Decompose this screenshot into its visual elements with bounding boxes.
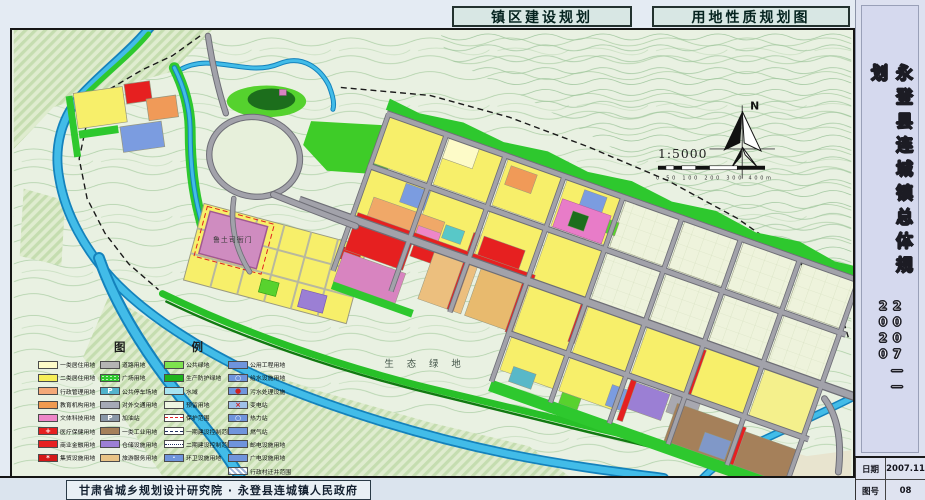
- planning-sheet: 镇区建设规划 用地性质规划图: [0, 0, 925, 500]
- map-frame: N 1:5000 0 50 100 200 300 400m 鲁土司衙门 生 态…: [10, 28, 855, 478]
- title-sidebar: 永登县连城镇总体规划 2007——2020 日期 2007.11 图号 08: [855, 0, 925, 500]
- date-label: 日期: [856, 458, 886, 480]
- landuse-map: N 1:5000 0 50 100 200 300 400m 鲁土司衙门 生 态…: [12, 30, 853, 476]
- figure-number-value: 08: [886, 480, 925, 500]
- landmark-label: 鲁土司衙门: [213, 235, 253, 244]
- credit-box: 甘肃省城乡规划设计研究院 · 永登县连城镇人民政府: [66, 480, 371, 500]
- footer-bar: 甘肃省城乡规划设计研究院 · 永登县连城镇人民政府: [0, 476, 855, 500]
- title-block-table: 日期 2007.11 图号 08: [855, 456, 925, 500]
- date-value: 2007.11: [886, 458, 925, 480]
- sheet-title-right: 用地性质规划图: [652, 6, 850, 27]
- scale-text: 1:5000: [658, 147, 707, 161]
- plan-years-vertical: 2007——2020: [876, 299, 904, 452]
- north-label: N: [750, 99, 759, 112]
- plan-title-vertical: 永登县连城镇总体规划: [865, 64, 915, 293]
- figure-number-label: 图号: [856, 480, 886, 500]
- sheet-title-left: 镇区建设规划: [452, 6, 632, 27]
- eco-label: 生 态 绿 地: [384, 358, 465, 370]
- sidebar-panel: 永登县连城镇总体规划 2007——2020: [861, 5, 919, 453]
